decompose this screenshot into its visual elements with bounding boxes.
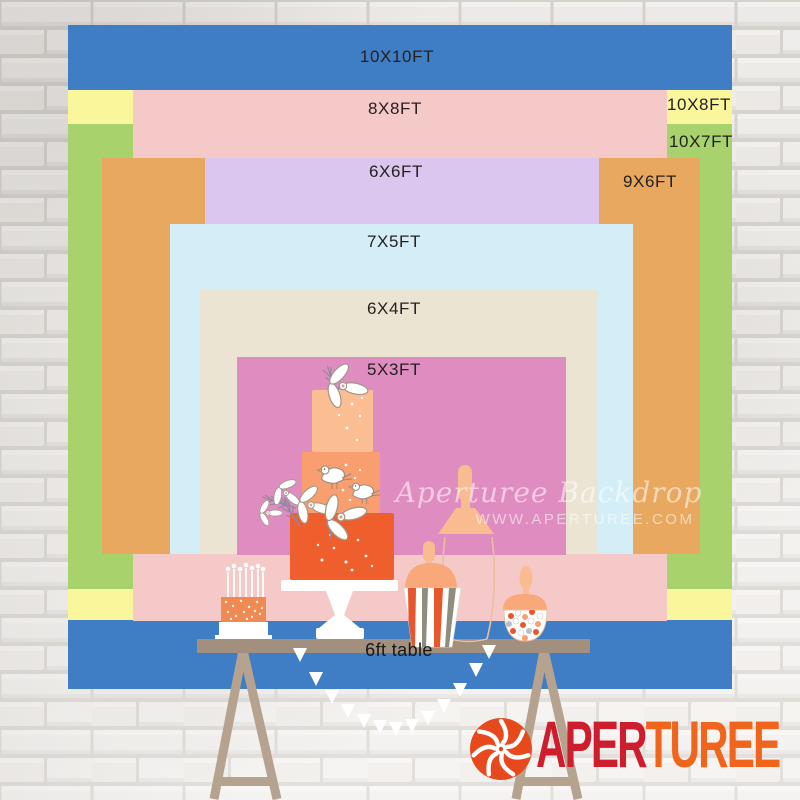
size-label-10x7ft: 10X7FT: [669, 133, 733, 150]
size-label-6x6ft: 6X6FT: [369, 163, 423, 180]
size-label-5x3ft: 5X3FT: [367, 361, 421, 378]
aperturee-logo: APERTUREE: [466, 710, 800, 790]
size-label-7x5ft: 7X5FT: [367, 233, 421, 250]
size-label-9x6ft: 9X6FT: [623, 173, 677, 190]
watermark-script-text: Aperturee Backdrop: [396, 479, 703, 507]
table-width-label: 6ft table: [365, 640, 433, 661]
logo-text-orange: TUREE: [646, 707, 780, 781]
size-label-10x10ft: 10X10FT: [360, 48, 434, 65]
size-label-6x4ft: 6X4FT: [367, 300, 421, 317]
backdrop-size-chart: 10X10FT 8X8FT 10X8FT 10X7FT 6X6FT 9X6FT …: [0, 0, 800, 800]
logo-text-red: APER: [536, 707, 646, 781]
logo-wordmark: APERTUREE: [536, 711, 779, 777]
size-label-10x8ft: 10X8FT: [667, 96, 731, 113]
size-label-8x8ft: 8X8FT: [368, 100, 422, 117]
aperture-shutter-icon: [468, 716, 534, 782]
watermark-url-text: WWW.APERTUREE.COM: [476, 512, 695, 527]
